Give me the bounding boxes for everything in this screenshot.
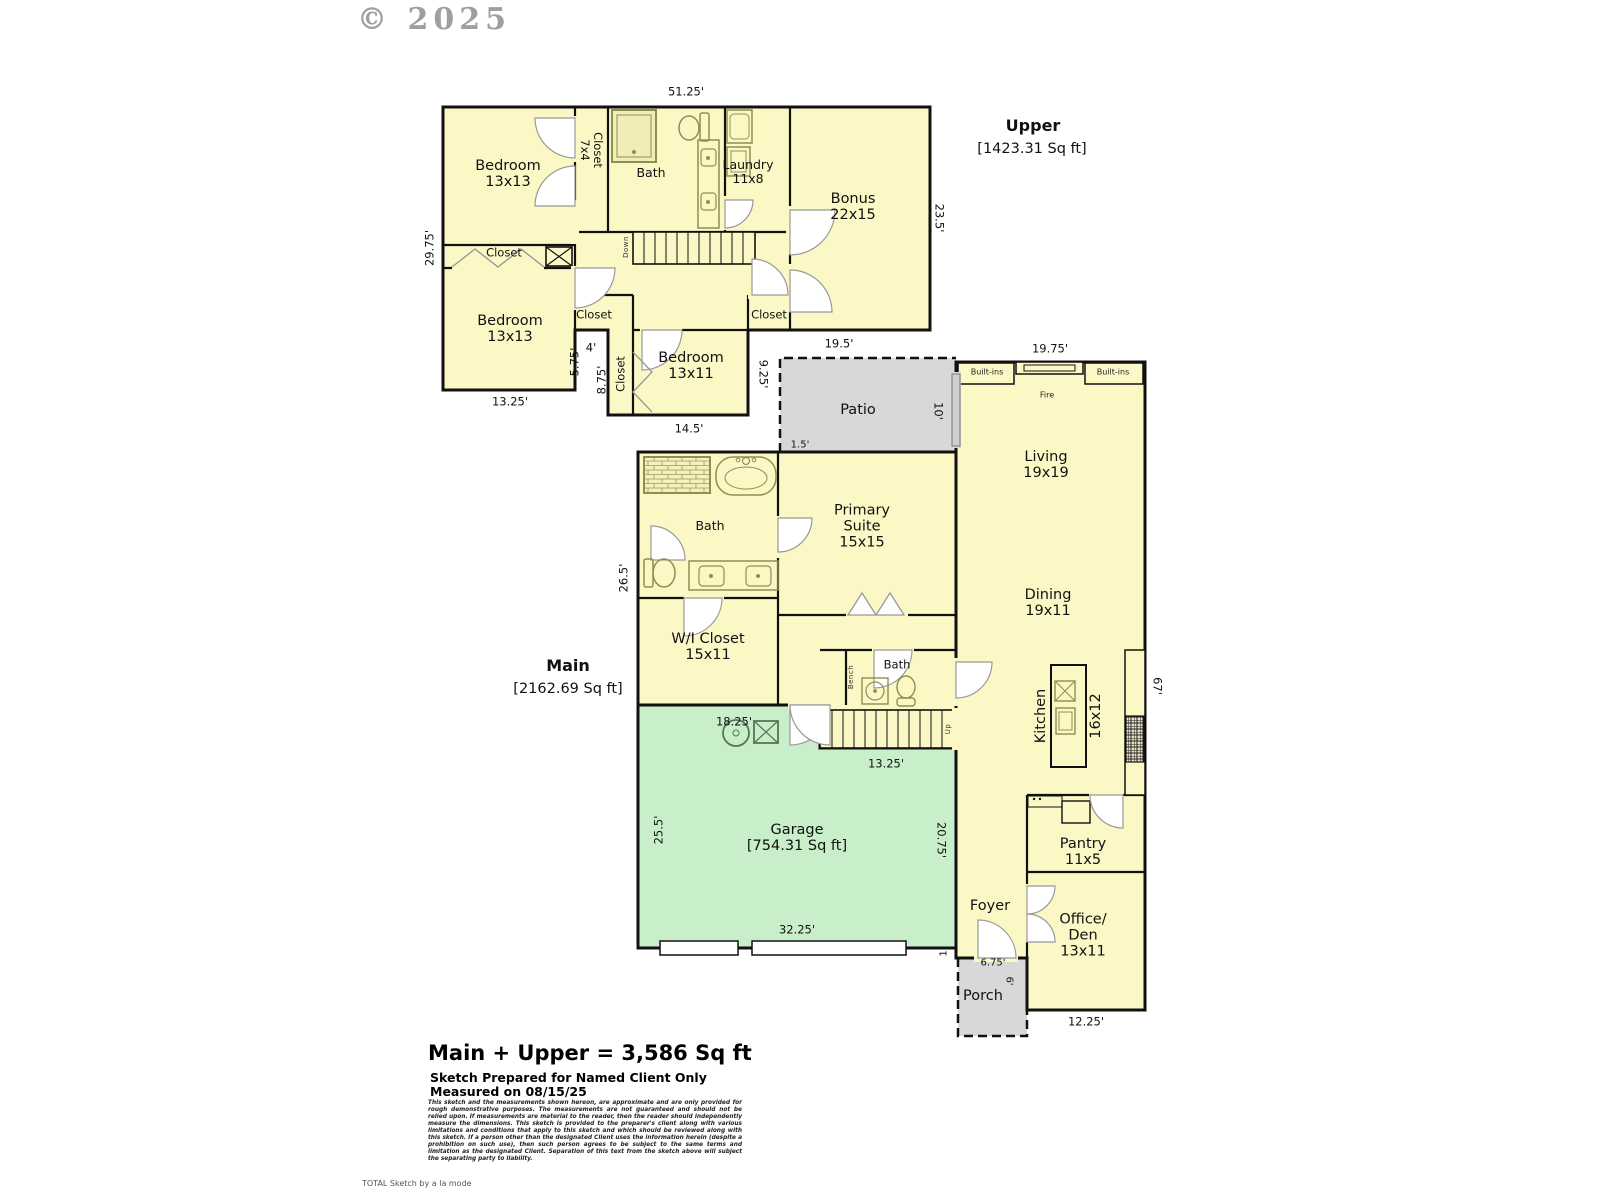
floorplan-drawing bbox=[0, 0, 1600, 1200]
floorplan-sheet: © 2025 51.25' Upper [1423.31 Sq ft] Bedr… bbox=[0, 0, 1600, 1200]
dim-bonus-w: 19.5' bbox=[825, 338, 854, 351]
dim-garage-top: 18.25' bbox=[716, 716, 752, 729]
room-closet-mid: Closet bbox=[576, 309, 612, 322]
dim-upper-top: 51.25' bbox=[668, 86, 704, 99]
measured-date-text: Measured on 08/15/25 bbox=[430, 1084, 587, 1099]
dim-notch-w: 4' bbox=[586, 342, 596, 355]
dim-living-w: 19.75' bbox=[1032, 343, 1068, 356]
dim-stairs-w: 13.25' bbox=[868, 758, 904, 771]
room-dining: Dining 19x11 bbox=[1025, 587, 1072, 619]
dim-upper-right: 23.5' bbox=[933, 204, 946, 233]
brand-text: TOTAL Sketch by a la mode bbox=[362, 1179, 472, 1188]
kitchen-counter bbox=[1125, 650, 1145, 795]
room-patio: Patio bbox=[840, 402, 876, 418]
room-porch: Porch bbox=[963, 988, 1003, 1004]
total-sqft-text: Main + Upper = 3,586 Sq ft bbox=[428, 1041, 752, 1065]
room-garage: Garage [754.31 Sq ft] bbox=[747, 822, 847, 854]
prepared-for-text: Sketch Prepared for Named Client Only bbox=[430, 1070, 707, 1085]
room-bath-main: Bath bbox=[695, 519, 724, 533]
dim-closet-h: 8.75' bbox=[596, 366, 609, 395]
dim-bed-mid-h: 9.25' bbox=[757, 360, 770, 389]
copyright-watermark: © 2025 bbox=[357, 2, 511, 37]
stairs-up-label: Up bbox=[945, 724, 953, 735]
upper-area: [1423.31 Sq ft] bbox=[977, 141, 1086, 157]
dim-office-w: 12.25' bbox=[1068, 1016, 1104, 1029]
room-primary-suite: Primary Suite 15x15 bbox=[834, 503, 890, 552]
dim-step: 1' bbox=[938, 947, 949, 956]
dim-porch-h: 6' bbox=[1003, 976, 1014, 985]
dim-left-h: 26.5' bbox=[618, 564, 631, 593]
room-laundry: Laundry 11x8 bbox=[723, 158, 774, 186]
dim-bed-mid-w: 14.5' bbox=[675, 423, 704, 436]
kitchen-size-label: 16x12 bbox=[1088, 693, 1104, 738]
dim-garage-left: 25.5' bbox=[653, 816, 666, 845]
dim-right-h: 67' bbox=[1151, 677, 1164, 695]
builtins-left-label: Built-ins bbox=[971, 369, 1004, 378]
room-closet-left: Closet bbox=[486, 247, 522, 260]
room-pantry: Pantry 11x5 bbox=[1060, 836, 1106, 868]
main-stairs bbox=[820, 710, 956, 748]
dim-porch-w: 6.75' bbox=[980, 957, 1005, 968]
room-bedroom-lower-left: Bedroom 13x13 bbox=[477, 313, 543, 345]
main-area: [2162.69 Sq ft] bbox=[513, 681, 622, 697]
kitchen-island bbox=[1051, 665, 1086, 767]
room-foyer: Foyer bbox=[970, 898, 1010, 914]
room-bath-upper: Bath bbox=[636, 166, 665, 180]
builtins-right-label: Built-ins bbox=[1097, 369, 1130, 378]
dim-patio-off: 1.5' bbox=[791, 439, 810, 450]
room-closet-vert: Closet bbox=[615, 356, 628, 392]
disclaimer-text: This sketch and the measurements shown h… bbox=[428, 1100, 742, 1163]
fireplace-label: Fire bbox=[1040, 392, 1054, 401]
room-closet-right: Closet bbox=[751, 309, 787, 322]
room-kitchen: Kitchen bbox=[1033, 689, 1049, 744]
garage-doors bbox=[660, 941, 906, 955]
stairs-down-label: Down bbox=[623, 236, 631, 258]
room-living: Living 19x19 bbox=[1023, 449, 1068, 481]
room-bedroom-mid: Bedroom 13x11 bbox=[658, 350, 724, 382]
room-office-den: Office/ Den 13x11 bbox=[1059, 912, 1106, 961]
room-closet-7x4: Closet 7x4 bbox=[578, 132, 604, 168]
patio-slider-door bbox=[952, 374, 960, 446]
room-bath-small: Bath bbox=[884, 659, 911, 672]
room-bedroom-upper-left: Bedroom 13x13 bbox=[475, 158, 541, 190]
upper-title: Upper bbox=[1006, 117, 1061, 135]
dim-upper-left: 29.75' bbox=[424, 230, 437, 266]
dim-patio-h: 10' bbox=[932, 402, 945, 420]
main-title: Main bbox=[546, 657, 590, 675]
dim-garage-w: 32.25' bbox=[779, 924, 815, 937]
dim-garage-right: 20.75' bbox=[935, 822, 948, 858]
dim-notch-h: 5.75' bbox=[569, 348, 582, 377]
room-bonus: Bonus 22x15 bbox=[830, 191, 875, 223]
upper-stairs bbox=[633, 232, 755, 264]
dim-bed-ll-w: 13.25' bbox=[492, 396, 528, 409]
bench-label: Bench bbox=[848, 665, 856, 689]
room-wi-closet: W/I Closet 15x11 bbox=[671, 631, 744, 663]
